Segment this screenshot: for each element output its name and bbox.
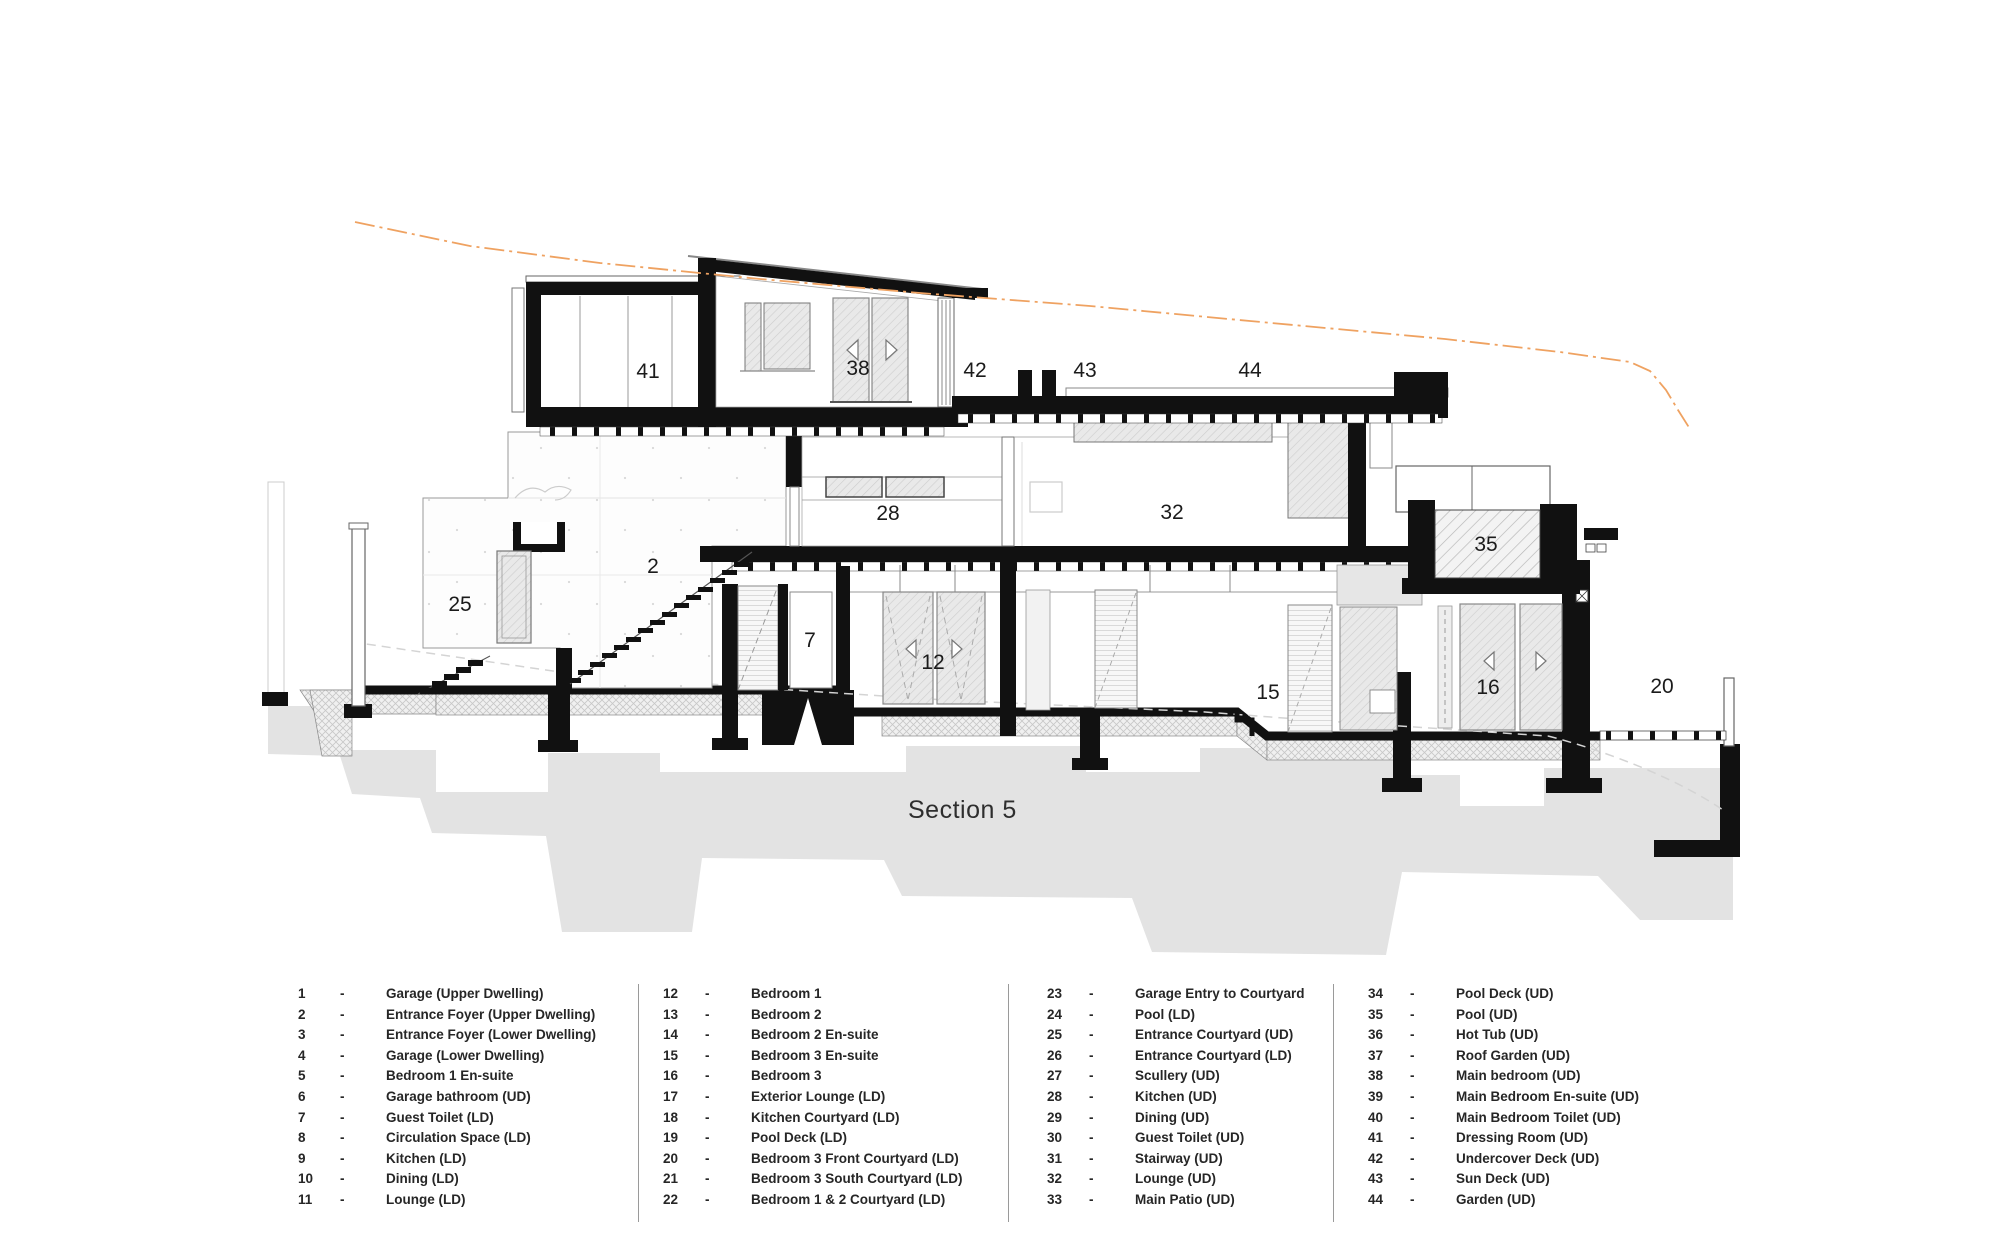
room-label-7: 7 xyxy=(804,629,816,652)
legend-item-number: 22 xyxy=(663,1190,705,1211)
legend: 1-Garage (Upper Dwelling)2-Entrance Foye… xyxy=(292,984,1712,1222)
legend-item-label: Roof Garden (UD) xyxy=(1456,1046,1705,1067)
legend-item: 34-Pool Deck (UD) xyxy=(1368,984,1705,1005)
legend-item: 10-Dining (LD) xyxy=(298,1169,638,1190)
legend-item: 32-Lounge (UD) xyxy=(1047,1169,1333,1190)
legend-item-separator: - xyxy=(705,1025,751,1046)
legend-item-separator: - xyxy=(340,1087,386,1108)
legend-item: 27-Scullery (UD) xyxy=(1047,1066,1333,1087)
legend-item: 16-Bedroom 3 xyxy=(663,1066,1008,1087)
legend-item: 11-Lounge (LD) xyxy=(298,1190,638,1211)
legend-column-3: 23-Garage Entry to Courtyard24-Pool (LD)… xyxy=(1008,984,1333,1222)
legend-item-number: 11 xyxy=(298,1190,340,1211)
legend-item: 29-Dining (UD) xyxy=(1047,1108,1333,1129)
legend-item-separator: - xyxy=(340,1025,386,1046)
legend-item: 14-Bedroom 2 En-suite xyxy=(663,1025,1008,1046)
legend-item-separator: - xyxy=(1410,1025,1456,1046)
legend-item-label: Entrance Foyer (Lower Dwelling) xyxy=(386,1025,638,1046)
legend-item-separator: - xyxy=(340,1046,386,1067)
legend-item-separator: - xyxy=(705,1087,751,1108)
legend-item-label: Bedroom 1 xyxy=(751,984,1008,1005)
legend-item: 26-Entrance Courtyard (LD) xyxy=(1047,1046,1333,1067)
main-floor-slab xyxy=(700,546,1412,562)
legend-item: 30-Guest Toilet (UD) xyxy=(1047,1128,1333,1149)
legend-item-number: 35 xyxy=(1368,1005,1410,1026)
room-label-12: 12 xyxy=(921,651,944,674)
legend-item-number: 16 xyxy=(663,1066,705,1087)
legend-item-number: 4 xyxy=(298,1046,340,1067)
legend-item-separator: - xyxy=(340,1005,386,1026)
legend-item-label: Bedroom 1 & 2 Courtyard (LD) xyxy=(751,1190,1008,1211)
legend-item-number: 39 xyxy=(1368,1087,1410,1108)
legend-item-number: 28 xyxy=(1047,1087,1089,1108)
legend-item-label: Dining (UD) xyxy=(1135,1108,1333,1129)
legend-item-separator: - xyxy=(1410,1005,1456,1026)
legend-item: 15-Bedroom 3 En-suite xyxy=(663,1046,1008,1067)
legend-column-1: 1-Garage (Upper Dwelling)2-Entrance Foye… xyxy=(292,984,638,1222)
legend-item-label: Guest Toilet (LD) xyxy=(386,1108,638,1129)
legend-item-separator: - xyxy=(340,1149,386,1170)
legend-item-label: Bedroom 2 xyxy=(751,1005,1008,1026)
legend-item-label: Entrance Courtyard (LD) xyxy=(1135,1046,1333,1067)
legend-item-number: 36 xyxy=(1368,1025,1410,1046)
legend-item-label: Main Patio (UD) xyxy=(1135,1190,1333,1211)
legend-item: 24-Pool (LD) xyxy=(1047,1005,1333,1026)
room-label-42: 42 xyxy=(963,359,986,382)
legend-item-separator: - xyxy=(340,1108,386,1129)
legend-item-number: 10 xyxy=(298,1169,340,1190)
legend-item: 37-Roof Garden (UD) xyxy=(1368,1046,1705,1067)
legend-item: 35-Pool (UD) xyxy=(1368,1005,1705,1026)
legend-item-separator: - xyxy=(340,1190,386,1211)
legend-item-number: 15 xyxy=(663,1046,705,1067)
legend-item-number: 38 xyxy=(1368,1066,1410,1087)
legend-item-number: 41 xyxy=(1368,1128,1410,1149)
room-label-38: 38 xyxy=(846,357,869,380)
room-label-32: 32 xyxy=(1160,501,1183,524)
legend-item-label: Sun Deck (UD) xyxy=(1456,1169,1705,1190)
legend-item: 2-Entrance Foyer (Upper Dwelling) xyxy=(298,1005,638,1026)
legend-item-separator: - xyxy=(1410,1169,1456,1190)
legend-item-number: 43 xyxy=(1368,1169,1410,1190)
room-label-15: 15 xyxy=(1256,681,1279,704)
legend-item: 36-Hot Tub (UD) xyxy=(1368,1025,1705,1046)
legend-item: 25-Entrance Courtyard (UD) xyxy=(1047,1025,1333,1046)
legend-item-label: Pool (UD) xyxy=(1456,1005,1705,1026)
legend-item-number: 9 xyxy=(298,1149,340,1170)
room-label-41: 41 xyxy=(636,360,659,383)
legend-item-separator: - xyxy=(705,1149,751,1170)
dressing-room xyxy=(512,268,740,427)
room-label-16: 16 xyxy=(1476,676,1499,699)
room-label-35: 35 xyxy=(1474,533,1497,556)
legend-item-number: 37 xyxy=(1368,1046,1410,1067)
room-label-43: 43 xyxy=(1073,359,1096,382)
legend-item-separator: - xyxy=(1089,1066,1135,1087)
legend-item: 31-Stairway (UD) xyxy=(1047,1149,1333,1170)
legend-item-label: Main Bedroom En-suite (UD) xyxy=(1456,1087,1705,1108)
legend-item-label: Garage bathroom (UD) xyxy=(386,1087,638,1108)
legend-item-label: Main Bedroom Toilet (UD) xyxy=(1456,1108,1705,1129)
legend-item: 40-Main Bedroom Toilet (UD) xyxy=(1368,1108,1705,1129)
legend-item: 12-Bedroom 1 xyxy=(663,984,1008,1005)
legend-item-label: Pool Deck (LD) xyxy=(751,1128,1008,1149)
legend-item-separator: - xyxy=(1410,1046,1456,1067)
main-bedroom xyxy=(688,256,988,407)
legend-item-label: Scullery (UD) xyxy=(1135,1066,1333,1087)
legend-item-separator: - xyxy=(1410,1066,1456,1087)
architectural-sheet: 41 38 42 43 44 28 32 35 2 25 7 12 15 16 … xyxy=(0,0,2000,1257)
legend-item-label: Hot Tub (UD) xyxy=(1456,1025,1705,1046)
section-title: Section 5 xyxy=(908,796,1017,824)
legend-item-separator: - xyxy=(1410,1087,1456,1108)
legend-item: 8-Circulation Space (LD) xyxy=(298,1128,638,1149)
legend-item: 19-Pool Deck (LD) xyxy=(663,1128,1008,1149)
legend-item-number: 34 xyxy=(1368,984,1410,1005)
legend-item: 20-Bedroom 3 Front Courtyard (LD) xyxy=(663,1149,1008,1170)
legend-item-number: 1 xyxy=(298,984,340,1005)
legend-item-label: Undercover Deck (UD) xyxy=(1456,1149,1705,1170)
legend-item-number: 6 xyxy=(298,1087,340,1108)
legend-item: 43-Sun Deck (UD) xyxy=(1368,1169,1705,1190)
legend-column-2: 12-Bedroom 113-Bedroom 214-Bedroom 2 En-… xyxy=(638,984,1008,1222)
legend-item-number: 20 xyxy=(663,1149,705,1170)
legend-item-number: 12 xyxy=(663,984,705,1005)
legend-item: 21-Bedroom 3 South Courtyard (LD) xyxy=(663,1169,1008,1190)
legend-item: 22-Bedroom 1 & 2 Courtyard (LD) xyxy=(663,1190,1008,1211)
room-label-25: 25 xyxy=(448,593,471,616)
legend-item-separator: - xyxy=(1089,1046,1135,1067)
legend-item-number: 21 xyxy=(663,1169,705,1190)
legend-item: 5-Bedroom 1 En-suite xyxy=(298,1066,638,1087)
legend-item: 9-Kitchen (LD) xyxy=(298,1149,638,1170)
entrance-courtyard-walls xyxy=(262,482,368,706)
legend-item-separator: - xyxy=(1410,984,1456,1005)
legend-item-label: Dressing Room (UD) xyxy=(1456,1128,1705,1149)
room-label-44: 44 xyxy=(1238,359,1262,382)
legend-item-label: Guest Toilet (UD) xyxy=(1135,1128,1333,1149)
legend-item-separator: - xyxy=(1410,1190,1456,1211)
legend-item-separator: - xyxy=(705,1128,751,1149)
legend-item-separator: - xyxy=(1410,1128,1456,1149)
legend-item-label: Bedroom 3 South Courtyard (LD) xyxy=(751,1169,1008,1190)
legend-item-number: 29 xyxy=(1047,1108,1089,1129)
legend-item-label: Garage (Upper Dwelling) xyxy=(386,984,638,1005)
legend-item: 13-Bedroom 2 xyxy=(663,1005,1008,1026)
legend-item-separator: - xyxy=(1089,1025,1135,1046)
legend-item: 7-Guest Toilet (LD) xyxy=(298,1108,638,1129)
legend-item: 6-Garage bathroom (UD) xyxy=(298,1087,638,1108)
legend-item-label: Dining (LD) xyxy=(386,1169,638,1190)
legend-item-separator: - xyxy=(705,1190,751,1211)
legend-item: 42-Undercover Deck (UD) xyxy=(1368,1149,1705,1170)
legend-item-number: 33 xyxy=(1047,1190,1089,1211)
legend-item-number: 7 xyxy=(298,1108,340,1129)
roof-deck xyxy=(952,370,1448,423)
legend-item-separator: - xyxy=(1089,1190,1135,1211)
legend-item-separator: - xyxy=(1089,1005,1135,1026)
room-label-28: 28 xyxy=(876,502,899,525)
legend-item-number: 27 xyxy=(1047,1066,1089,1087)
legend-item-number: 42 xyxy=(1368,1149,1410,1170)
legend-item-label: Lounge (UD) xyxy=(1135,1169,1333,1190)
legend-item: 23-Garage Entry to Courtyard xyxy=(1047,984,1333,1005)
legend-item-number: 3 xyxy=(298,1025,340,1046)
legend-item-number: 8 xyxy=(298,1128,340,1149)
legend-item: 33-Main Patio (UD) xyxy=(1047,1190,1333,1211)
legend-item-label: Pool (LD) xyxy=(1135,1005,1333,1026)
legend-item-label: Kitchen (LD) xyxy=(386,1149,638,1170)
legend-item: 41-Dressing Room (UD) xyxy=(1368,1128,1705,1149)
legend-item-number: 24 xyxy=(1047,1005,1089,1026)
legend-item-separator: - xyxy=(705,1046,751,1067)
legend-item: 1-Garage (Upper Dwelling) xyxy=(298,984,638,1005)
legend-item-number: 26 xyxy=(1047,1046,1089,1067)
legend-item-label: Lounge (LD) xyxy=(386,1190,638,1211)
legend-item-number: 32 xyxy=(1047,1169,1089,1190)
legend-item-label: Entrance Courtyard (UD) xyxy=(1135,1025,1333,1046)
legend-item-number: 44 xyxy=(1368,1190,1410,1211)
legend-item: 38-Main bedroom (UD) xyxy=(1368,1066,1705,1087)
legend-item-number: 19 xyxy=(663,1128,705,1149)
legend-item-number: 40 xyxy=(1368,1108,1410,1129)
legend-item-label: Bedroom 3 xyxy=(751,1066,1008,1087)
legend-item: 17-Exterior Lounge (LD) xyxy=(663,1087,1008,1108)
legend-item-separator: - xyxy=(1089,984,1135,1005)
legend-item-separator: - xyxy=(1089,1149,1135,1170)
legend-item-separator: - xyxy=(1089,1169,1135,1190)
legend-item: 4-Garage (Lower Dwelling) xyxy=(298,1046,638,1067)
legend-item-number: 14 xyxy=(663,1025,705,1046)
legend-item-label: Garage Entry to Courtyard xyxy=(1135,984,1333,1005)
legend-item-separator: - xyxy=(340,1169,386,1190)
legend-column-4: 34-Pool Deck (UD)35-Pool (UD)36-Hot Tub … xyxy=(1333,984,1705,1222)
legend-item-separator: - xyxy=(1410,1149,1456,1170)
room-label-20: 20 xyxy=(1650,675,1673,698)
legend-item: 28-Kitchen (UD) xyxy=(1047,1087,1333,1108)
room-label-2: 2 xyxy=(647,555,659,578)
legend-item-label: Bedroom 1 En-suite xyxy=(386,1066,638,1087)
legend-item-label: Kitchen (UD) xyxy=(1135,1087,1333,1108)
legend-item-separator: - xyxy=(705,1108,751,1129)
legend-item-number: 5 xyxy=(298,1066,340,1087)
legend-item-label: Entrance Foyer (Upper Dwelling) xyxy=(386,1005,638,1026)
legend-item-separator: - xyxy=(705,984,751,1005)
legend-item-number: 13 xyxy=(663,1005,705,1026)
legend-item-separator: - xyxy=(1089,1108,1135,1129)
legend-item-separator: - xyxy=(705,1066,751,1087)
legend-item-label: Bedroom 3 Front Courtyard (LD) xyxy=(751,1149,1008,1170)
legend-item-separator: - xyxy=(1089,1128,1135,1149)
legend-item: 18-Kitchen Courtyard (LD) xyxy=(663,1108,1008,1129)
legend-item-number: 30 xyxy=(1047,1128,1089,1149)
legend-item-label: Circulation Space (LD) xyxy=(386,1128,638,1149)
legend-item: 39-Main Bedroom En-suite (UD) xyxy=(1368,1087,1705,1108)
legend-item-separator: - xyxy=(340,1128,386,1149)
bedroom-level-slab xyxy=(526,407,968,436)
legend-item-separator: - xyxy=(1410,1108,1456,1129)
legend-item-number: 2 xyxy=(298,1005,340,1026)
legend-item-label: Garden (UD) xyxy=(1456,1190,1705,1211)
legend-item-label: Stairway (UD) xyxy=(1135,1149,1333,1170)
legend-item: 44-Garden (UD) xyxy=(1368,1190,1705,1211)
legend-item-label: Garage (Lower Dwelling) xyxy=(386,1046,638,1067)
legend-item-number: 23 xyxy=(1047,984,1089,1005)
legend-item-separator: - xyxy=(705,1005,751,1026)
legend-item-separator: - xyxy=(340,984,386,1005)
legend-item: 3-Entrance Foyer (Lower Dwelling) xyxy=(298,1025,638,1046)
legend-item-label: Kitchen Courtyard (LD) xyxy=(751,1108,1008,1129)
legend-item-number: 18 xyxy=(663,1108,705,1129)
legend-item-label: Bedroom 3 En-suite xyxy=(751,1046,1008,1067)
legend-item-label: Pool Deck (UD) xyxy=(1456,984,1705,1005)
legend-item-number: 25 xyxy=(1047,1025,1089,1046)
legend-item-separator: - xyxy=(340,1066,386,1087)
legend-item-number: 31 xyxy=(1047,1149,1089,1170)
legend-item-label: Bedroom 2 En-suite xyxy=(751,1025,1008,1046)
legend-item-separator: - xyxy=(705,1169,751,1190)
legend-item-label: Main bedroom (UD) xyxy=(1456,1066,1705,1087)
legend-item-number: 17 xyxy=(663,1087,705,1108)
legend-item-label: Exterior Lounge (LD) xyxy=(751,1087,1008,1108)
legend-item-separator: - xyxy=(1089,1087,1135,1108)
